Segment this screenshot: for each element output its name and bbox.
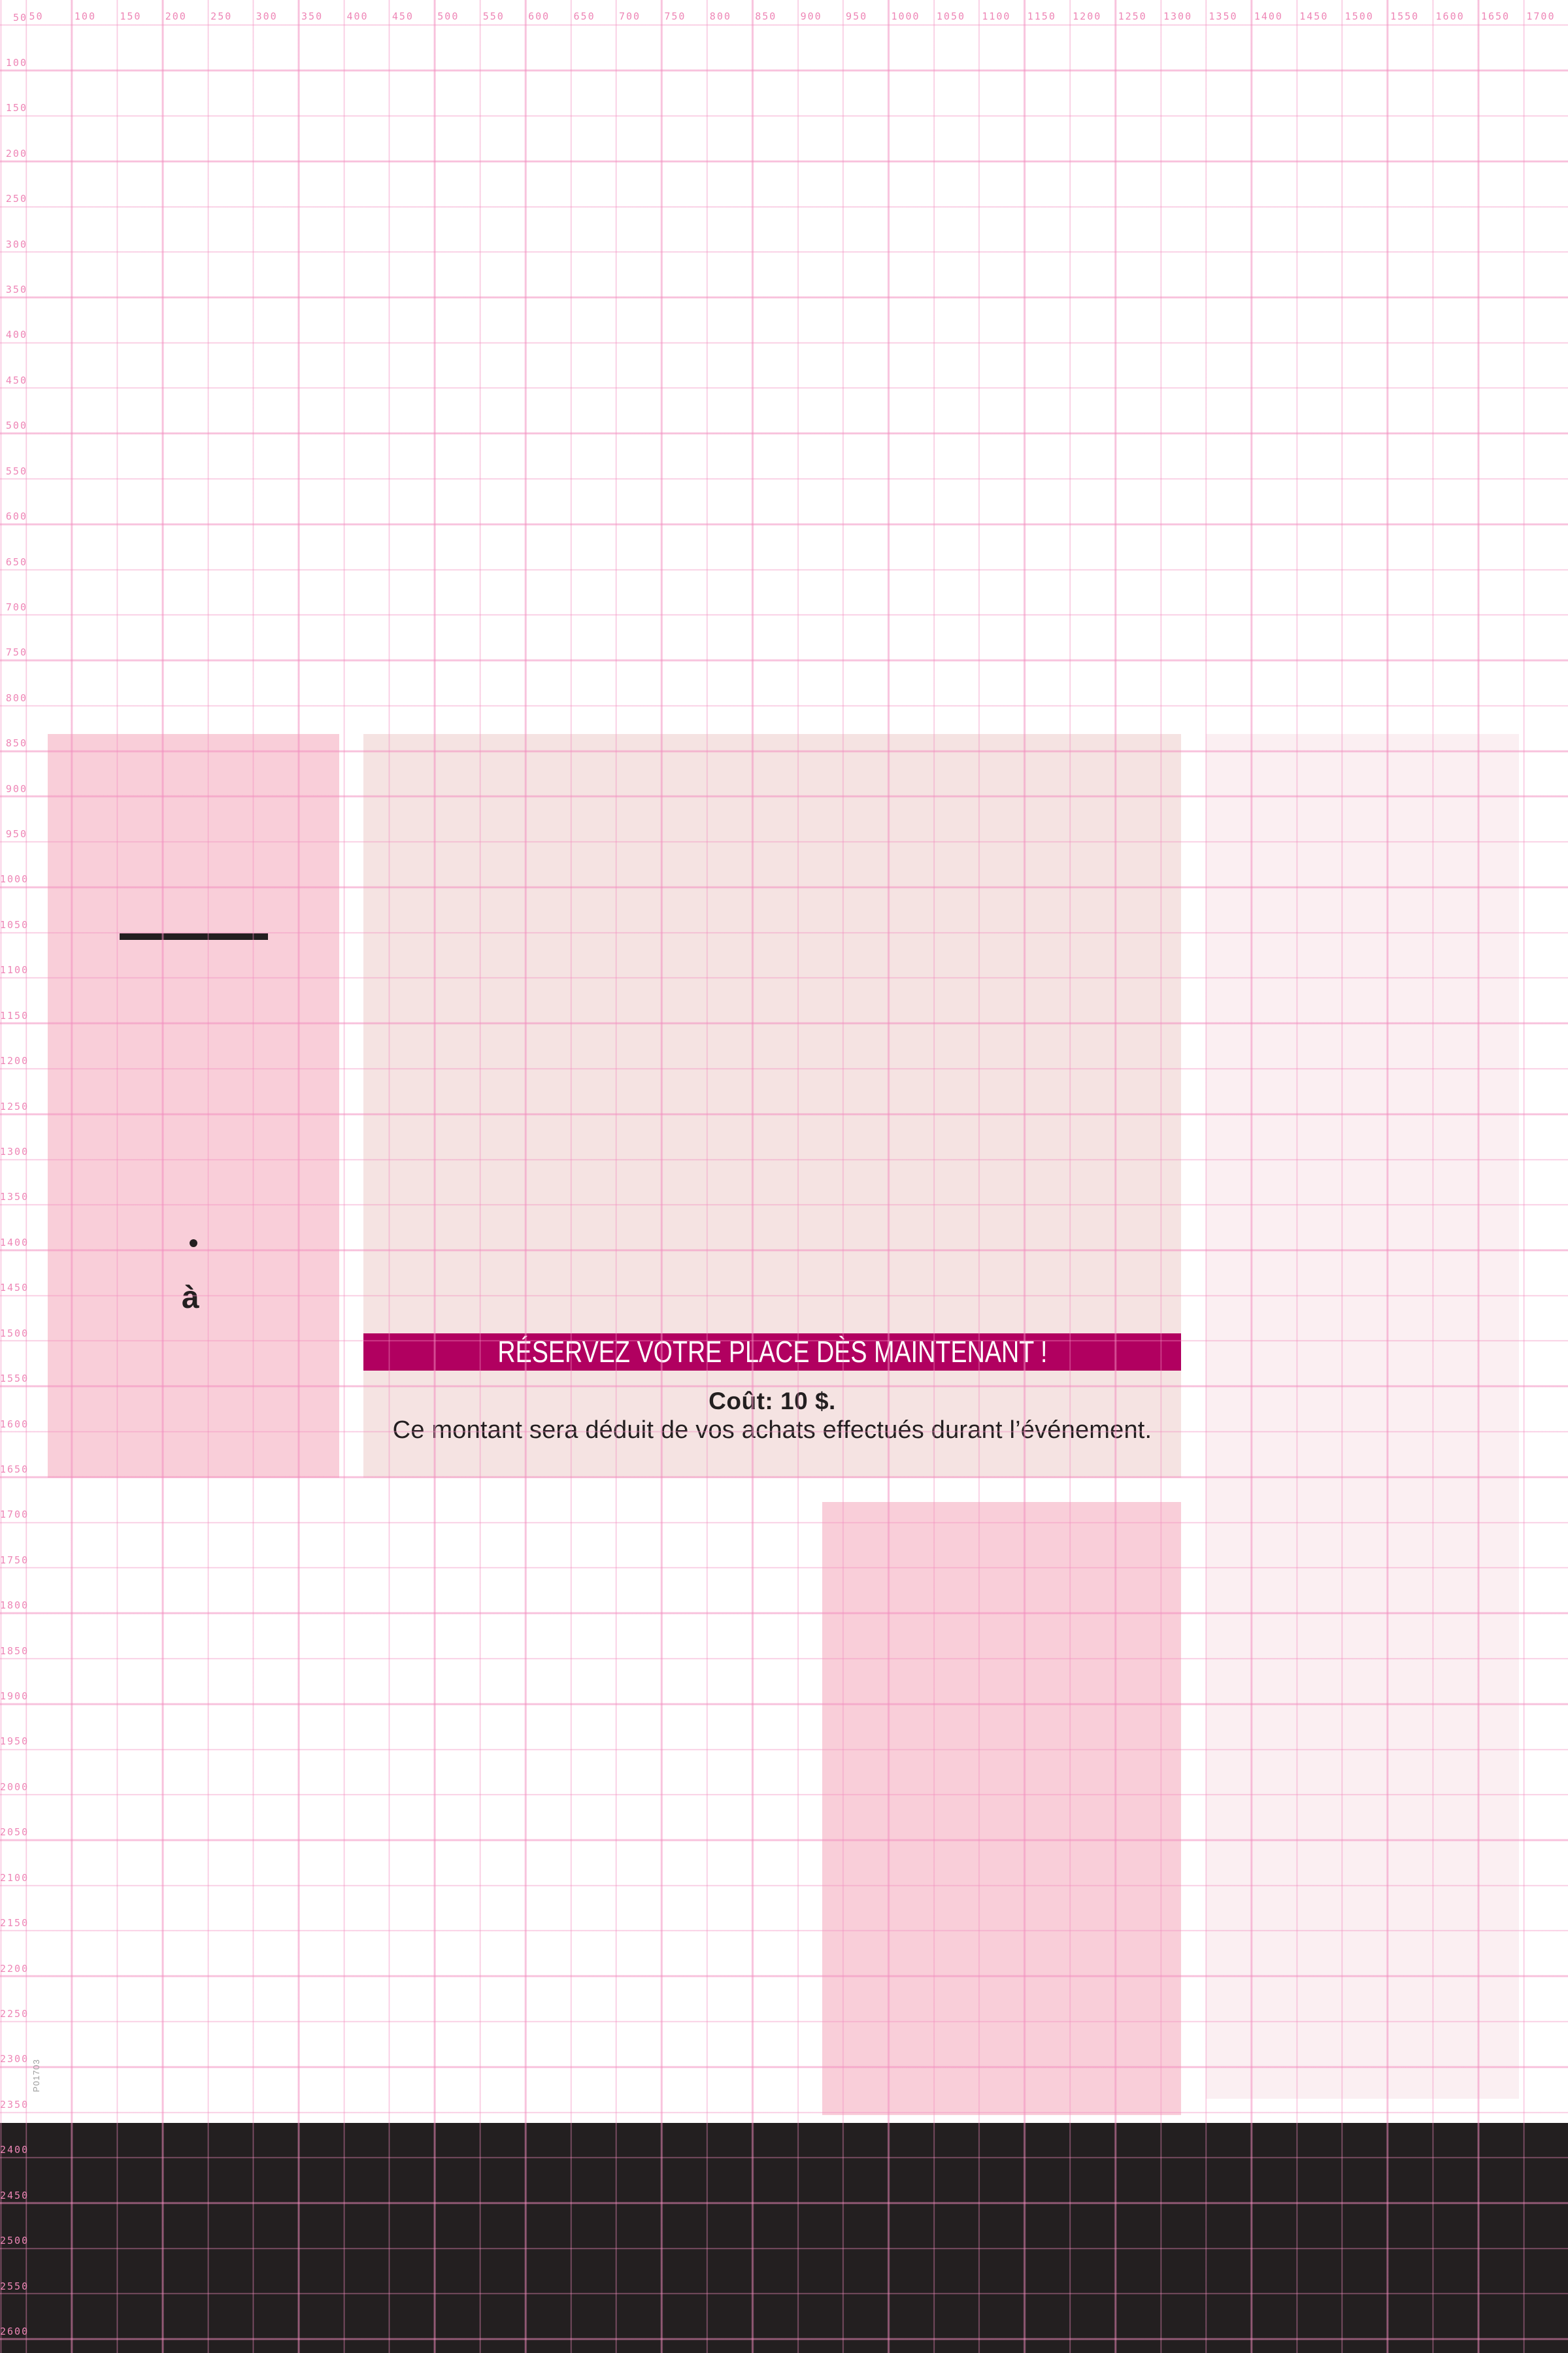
ruler-left-label: 1700 — [0, 1508, 27, 1521]
ruler-top-label: 100 — [75, 10, 96, 23]
ruler-left-label: 1750 — [0, 1554, 27, 1567]
ruler-top-label: 350 — [301, 10, 323, 23]
cost-body: Ce montant sera déduit de vos achats eff… — [298, 1416, 1246, 1444]
marks-layer: à — [0, 0, 1568, 2353]
footer-bar: Duke Tower Compounding Pharmacy U — [0, 2123, 1568, 2353]
ruler-top-label: 150 — [120, 10, 141, 23]
ruler-left-label: 2300 — [0, 2052, 27, 2065]
ruler-left-label: 1450 — [0, 1281, 27, 1294]
ruler-top-label: 800 — [710, 10, 731, 23]
ruler-left-label: 1350 — [0, 1190, 27, 1203]
ruler-top-label: 1650 — [1481, 10, 1510, 23]
ruler-top-label: 1200 — [1073, 10, 1101, 23]
ruler-left-label: 1850 — [0, 1644, 27, 1658]
proof-page: à RÉSERVEZ VOTRE PLACE DÈS MAINTENANT ! … — [0, 0, 1568, 2353]
ruler-top-label: 1150 — [1027, 10, 1056, 23]
ruler-left-label: 650 — [0, 556, 27, 569]
ruler-top-label: 700 — [619, 10, 641, 23]
ruler-top-label: 1250 — [1118, 10, 1147, 23]
ruler-left-label: 1250 — [0, 1100, 27, 1113]
ruler-left-label: 1550 — [0, 1372, 27, 1385]
ruler-left-label: 1650 — [0, 1463, 27, 1476]
a-label: à — [182, 1282, 199, 1314]
ruler-top-label: 1300 — [1163, 10, 1192, 23]
ruler-left-label: 400 — [0, 328, 27, 341]
ruler-top-label: 250 — [210, 10, 232, 23]
ruler-top-label: 1350 — [1209, 10, 1237, 23]
ruler-top-label: 1600 — [1436, 10, 1465, 23]
ruler-left-label: 350 — [0, 283, 27, 296]
ruler-top-label: 300 — [256, 10, 278, 23]
redline-dash — [120, 933, 268, 940]
ruler-left-label: 500 — [0, 419, 27, 432]
ruler-top-label: 1500 — [1345, 10, 1374, 23]
ruler-top-label: 950 — [846, 10, 867, 23]
ruler-left-label: 600 — [0, 510, 27, 523]
ruler-top-label: 750 — [664, 10, 686, 23]
ruler-left-label: 1800 — [0, 1599, 27, 1612]
ruler-left-label: 2000 — [0, 1780, 27, 1794]
ruler-left-label: 900 — [0, 782, 27, 795]
ruler-left-label: 800 — [0, 692, 27, 705]
ruler-left-label: 2250 — [0, 2007, 27, 2020]
ruler-left-label: 100 — [0, 56, 27, 69]
bullet-dot — [190, 1239, 197, 1247]
ruler-top-label: 550 — [483, 10, 505, 23]
ruler-left-label: 1200 — [0, 1054, 27, 1067]
ruler-top-label: 900 — [801, 10, 822, 23]
ruler-left-label: 2550 — [0, 2280, 27, 2293]
ruler-left-label: 1500 — [0, 1327, 27, 1340]
ruler-left-label: 2400 — [0, 2143, 27, 2156]
ruler-left-label: 2450 — [0, 2189, 27, 2202]
ruler-left-label: 250 — [0, 192, 27, 205]
ruler-left-label: 2100 — [0, 1871, 27, 1884]
ruler-left-label: 1900 — [0, 1690, 27, 1703]
ruler-left-label: 1150 — [0, 1009, 27, 1022]
cost-title: Coût: 10 $. — [363, 1388, 1181, 1414]
ruler-left-label: 700 — [0, 601, 27, 614]
ruler-left-label: 850 — [0, 737, 27, 750]
ruler-left-label: 2500 — [0, 2234, 27, 2247]
ruler-top-label: 1050 — [937, 10, 965, 23]
ruler-left-label: 50 — [0, 11, 27, 24]
ruler-top-label: 1450 — [1299, 10, 1328, 23]
ruler-left-label: 2200 — [0, 1962, 27, 1975]
ruler-top-label: 1550 — [1390, 10, 1419, 23]
ruler-left-label: 1300 — [0, 1145, 27, 1158]
ruler-left-label: 300 — [0, 238, 27, 251]
ruler-left-label: 1100 — [0, 963, 27, 976]
ruler-left-label: 1950 — [0, 1735, 27, 1748]
reserve-banner-label: RÉSERVEZ VOTRE PLACE DÈS MAINTENANT ! — [497, 1333, 1047, 1371]
ruler-left-label: 2150 — [0, 1916, 27, 1929]
ruler-left-label: 1000 — [0, 873, 27, 886]
ruler-left-label: 200 — [0, 147, 27, 160]
ruler-left-label: 1600 — [0, 1418, 27, 1431]
ruler-top-label: 50 — [29, 10, 44, 23]
ruler-top-label: 1100 — [982, 10, 1010, 23]
ruler-top-label: 400 — [346, 10, 368, 23]
proof-code: P01703 — [31, 2059, 41, 2092]
reserve-banner: RÉSERVEZ VOTRE PLACE DÈS MAINTENANT ! — [363, 1333, 1181, 1371]
ruler-left-label: 2050 — [0, 1826, 27, 1839]
ruler-left-label: 950 — [0, 827, 27, 841]
ruler-left-label: 150 — [0, 101, 27, 114]
ruler-top-label: 1000 — [891, 10, 920, 23]
ruler-top-label: 600 — [528, 10, 550, 23]
ruler-top-label: 650 — [574, 10, 595, 23]
ruler-left-label: 1400 — [0, 1236, 27, 1249]
ruler-top-label: 1400 — [1254, 10, 1283, 23]
ruler-left-label: 550 — [0, 465, 27, 478]
ruler-top-label: 850 — [755, 10, 776, 23]
ruler-left-label: 2600 — [0, 2325, 27, 2338]
ruler-left-label: 750 — [0, 646, 27, 659]
ruler-top-label: 450 — [392, 10, 414, 23]
ruler-left-label: 1050 — [0, 918, 27, 931]
ruler-left-label: 2350 — [0, 2098, 27, 2111]
ruler-top-label: 1700 — [1526, 10, 1555, 23]
ruler-left-label: 450 — [0, 374, 27, 387]
ruler-top-label: 200 — [165, 10, 187, 23]
ruler-top-label: 500 — [437, 10, 459, 23]
